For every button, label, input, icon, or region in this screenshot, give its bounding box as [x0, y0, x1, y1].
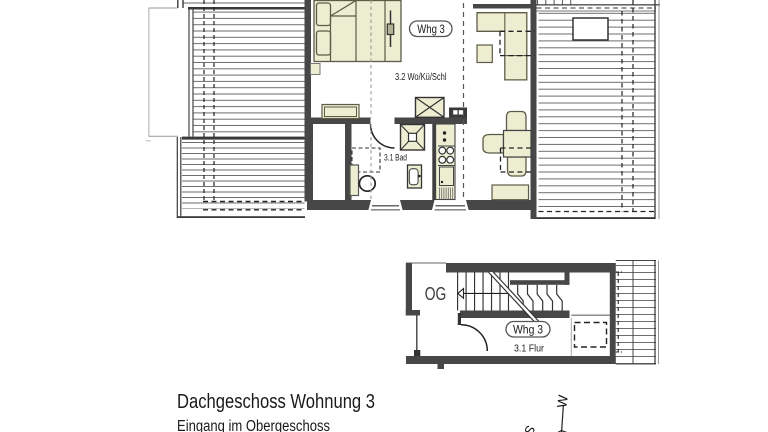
- svg-text:Dachgeschoss Wohnung 3: Dachgeschoss Wohnung 3: [177, 391, 375, 413]
- svg-text:Whg 3: Whg 3: [417, 22, 445, 36]
- svg-text:Eingang im Obergeschoss: Eingang im Obergeschoss: [177, 418, 330, 432]
- svg-text:W: W: [554, 394, 571, 409]
- svg-text:3.1 Bad: 3.1 Bad: [384, 153, 407, 164]
- svg-text:3.2 Wo/Kü/Schl: 3.2 Wo/Kü/Schl: [395, 72, 447, 83]
- svg-text:Whg 3: Whg 3: [513, 323, 543, 337]
- svg-text:OG: OG: [425, 283, 447, 304]
- svg-text:3.1 Flur: 3.1 Flur: [514, 343, 544, 355]
